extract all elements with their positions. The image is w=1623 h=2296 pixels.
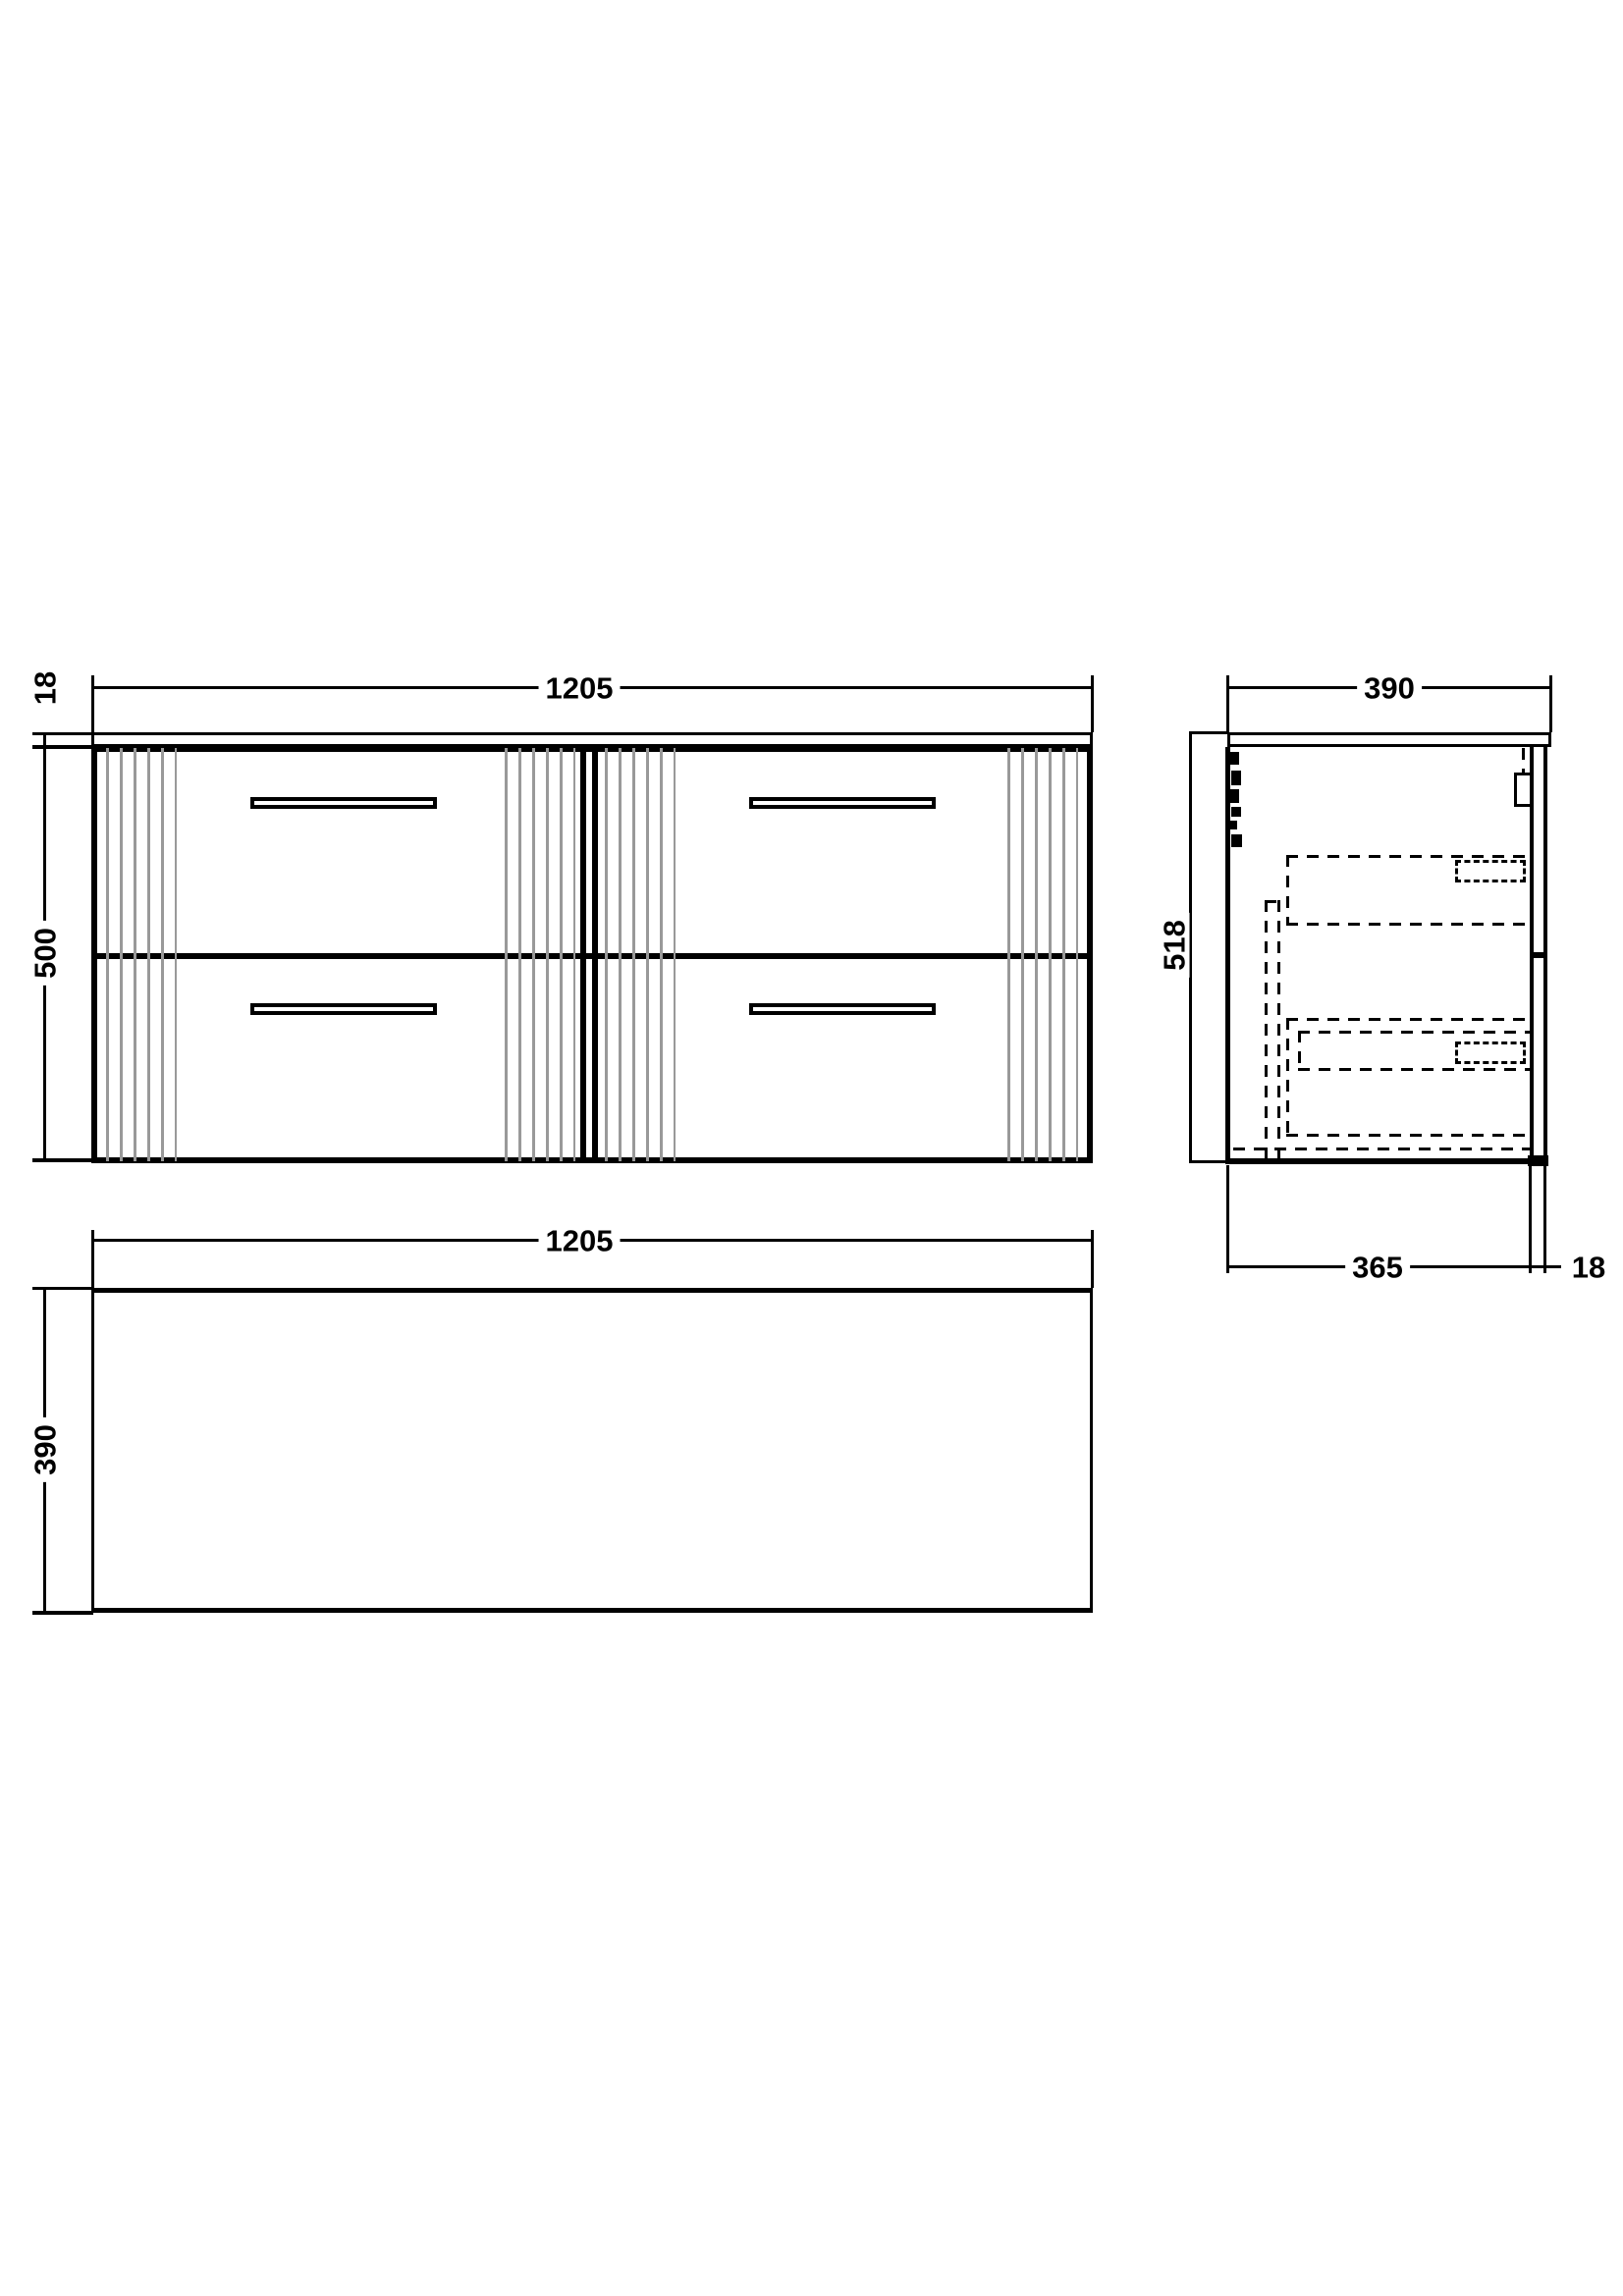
waste-recess-top <box>1265 900 1280 903</box>
front-center-divider-left <box>580 752 586 1157</box>
plan-depth-tick-bottom <box>32 1611 93 1615</box>
handle-lower-right-drawer <box>749 1003 936 1015</box>
bracket-mark <box>1231 807 1241 817</box>
front-countertop <box>91 732 1093 747</box>
upper-drawer-box-bottom <box>1286 923 1530 926</box>
bracket-mark <box>1229 821 1237 829</box>
flute-strip-left-of-center <box>505 748 575 1161</box>
side-depth-dim-label: 365 <box>1345 1253 1410 1283</box>
front-height-tick-bottom <box>32 1158 93 1162</box>
front-width-ext-right <box>1091 675 1094 732</box>
side-bottom-panel <box>1225 1158 1532 1164</box>
bracket-mark <box>1231 834 1242 847</box>
wall-bracket-detail <box>1228 752 1244 850</box>
side-countertop <box>1227 732 1551 747</box>
bracket-hidden-line <box>1522 748 1525 774</box>
front-cabinet-bottom-edge <box>91 1157 1093 1163</box>
plan-depth-tick-top <box>32 1287 93 1290</box>
bracket-mark <box>1230 789 1239 803</box>
front-cabinet-right-edge <box>1087 747 1093 1163</box>
side-drawer-front-joint <box>1530 952 1547 958</box>
bracket-step-bottom <box>1514 804 1531 807</box>
handle-upper-right-drawer <box>749 797 936 809</box>
side-width-ext-right <box>1549 675 1552 732</box>
handle-lower-left-drawer <box>250 1003 437 1015</box>
upper-drawer-hidden-handle <box>1455 860 1526 882</box>
lower-drawer-hidden-handle <box>1455 1041 1526 1064</box>
side-height-tick-bottom <box>1189 1160 1228 1163</box>
technical-drawing-canvas: 1205 18 500 390 <box>0 0 1623 2296</box>
side-depth-ext-back <box>1226 1165 1229 1273</box>
bracket-mark <box>1231 771 1241 785</box>
side-height-dim-label: 518 <box>1160 913 1190 978</box>
waste-recess-right <box>1277 900 1280 1164</box>
side-panel-ext <box>1543 1165 1546 1273</box>
side-panel-dim-label: 18 <box>1569 1253 1608 1283</box>
plan-width-dim-label: 1205 <box>539 1226 621 1256</box>
lower-drawer-inner-bottom <box>1298 1068 1530 1071</box>
front-width-ext-left <box>91 675 94 732</box>
flute-strip-left-edge <box>106 748 177 1161</box>
front-width-dim-label: 1205 <box>539 673 621 704</box>
bracket-mark <box>1229 752 1239 765</box>
front-counter-dim-label: 18 <box>30 668 61 708</box>
waste-recess-left <box>1265 900 1268 1164</box>
side-height-tick-top <box>1189 731 1228 734</box>
handle-upper-left-drawer <box>250 797 437 809</box>
lower-drawer-box-bottom <box>1286 1134 1530 1137</box>
front-counter-tick-bottom <box>32 745 91 749</box>
plan-depth-dim-label: 390 <box>30 1417 61 1482</box>
upper-drawer-box-top <box>1286 855 1530 858</box>
plan-countertop-outline <box>91 1288 1093 1613</box>
lower-drawer-inner-top <box>1298 1031 1530 1034</box>
front-center-divider-right <box>592 752 598 1157</box>
side-bottom-hidden-line <box>1233 1148 1530 1150</box>
front-counter-dim-line <box>43 733 46 748</box>
side-width-ext-left <box>1226 675 1229 732</box>
lower-drawer-box-back <box>1286 1018 1289 1137</box>
bracket-step-side <box>1514 773 1517 807</box>
flute-strip-right-of-center <box>605 748 676 1161</box>
upper-drawer-box-back <box>1286 855 1289 926</box>
flute-strip-right-edge <box>1007 748 1078 1161</box>
side-depth-ext-front <box>1529 1165 1532 1273</box>
front-height-dim-label: 500 <box>30 921 61 986</box>
lower-drawer-box-top <box>1286 1018 1530 1021</box>
lower-drawer-inner-back <box>1298 1031 1301 1071</box>
front-counter-tick-top <box>32 732 91 735</box>
side-width-dim-label: 390 <box>1357 673 1422 704</box>
